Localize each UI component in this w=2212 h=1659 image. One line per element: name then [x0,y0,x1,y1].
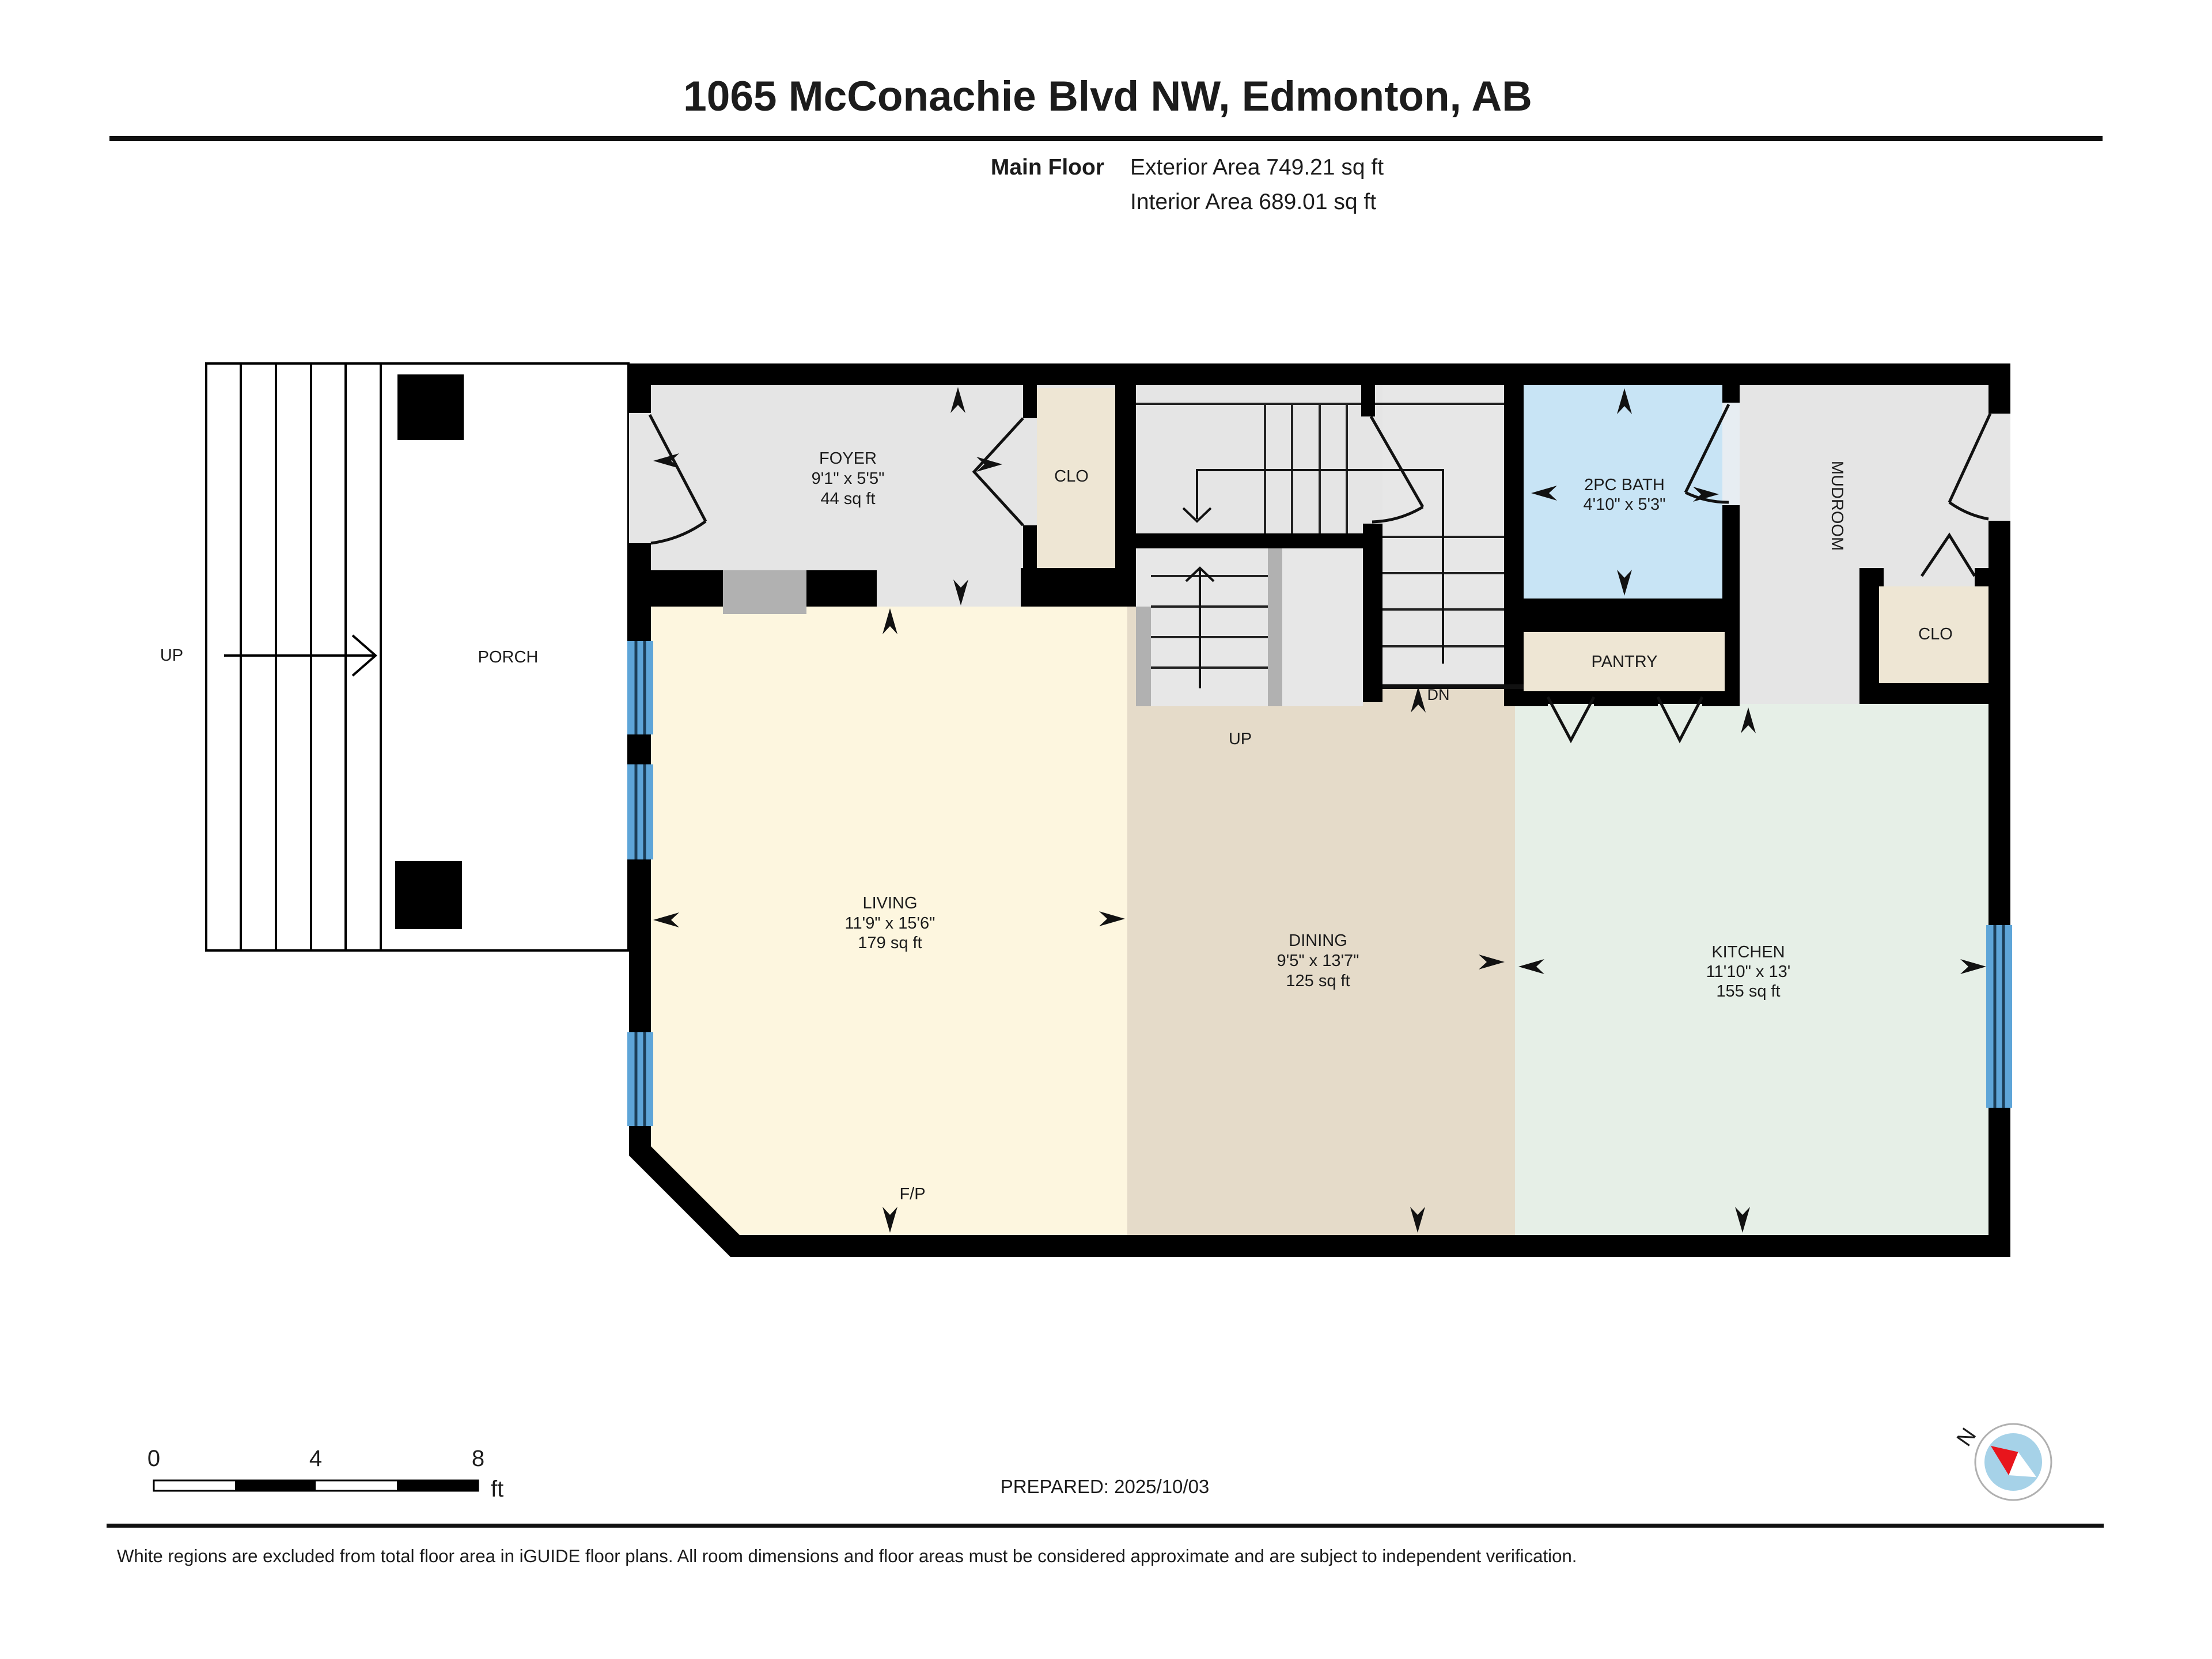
svg-text:4'10" x 5'3": 4'10" x 5'3" [1584,495,1666,514]
svg-text:4: 4 [309,1446,322,1471]
svg-text:CLO: CLO [1918,625,1953,643]
svg-text:11'10" x 13': 11'10" x 13' [1706,963,1791,981]
svg-text:179 sq ft: 179 sq ft [858,934,922,952]
svg-text:Exterior Area 749.21 sq ft: Exterior Area 749.21 sq ft [1130,155,1384,180]
svg-text:Interior Area 689.01 sq ft: Interior Area 689.01 sq ft [1130,190,1376,214]
svg-text:KITCHEN: KITCHEN [1711,943,1785,961]
svg-text:F/P: F/P [899,1185,925,1203]
svg-text:MUDROOM: MUDROOM [1828,461,1846,551]
svg-text:PORCH: PORCH [478,648,539,666]
svg-text:44 sq ft: 44 sq ft [820,490,875,508]
svg-text:FOYER: FOYER [819,449,877,468]
svg-text:UP: UP [160,646,183,665]
svg-text:11'9" x 15'6": 11'9" x 15'6" [845,914,935,933]
svg-text:155 sq ft: 155 sq ft [1716,982,1780,1001]
svg-text:ft: ft [491,1476,503,1502]
svg-text:White regions are excluded fro: White regions are excluded from total fl… [117,1546,1577,1566]
svg-text:1065 McConachie Blvd NW, Edmon: 1065 McConachie Blvd NW, Edmonton, AB [683,73,1532,120]
svg-text:UP: UP [1229,730,1252,748]
svg-text:DINING: DINING [1289,931,1347,950]
svg-text:125 sq ft: 125 sq ft [1286,972,1350,990]
svg-text:Main Floor: Main Floor [991,155,1104,180]
svg-text:CLO: CLO [1054,467,1089,486]
svg-text:2PC BATH: 2PC BATH [1584,476,1665,494]
svg-text:LIVING: LIVING [862,894,917,912]
svg-text:8: 8 [472,1446,484,1471]
svg-text:9'1" x 5'5": 9'1" x 5'5" [812,469,885,488]
svg-text:0: 0 [147,1446,160,1471]
svg-text:PREPARED: 2025/10/03: PREPARED: 2025/10/03 [1001,1476,1210,1497]
svg-text:PANTRY: PANTRY [1592,653,1658,671]
svg-text:9'5" x 13'7": 9'5" x 13'7" [1277,952,1359,970]
